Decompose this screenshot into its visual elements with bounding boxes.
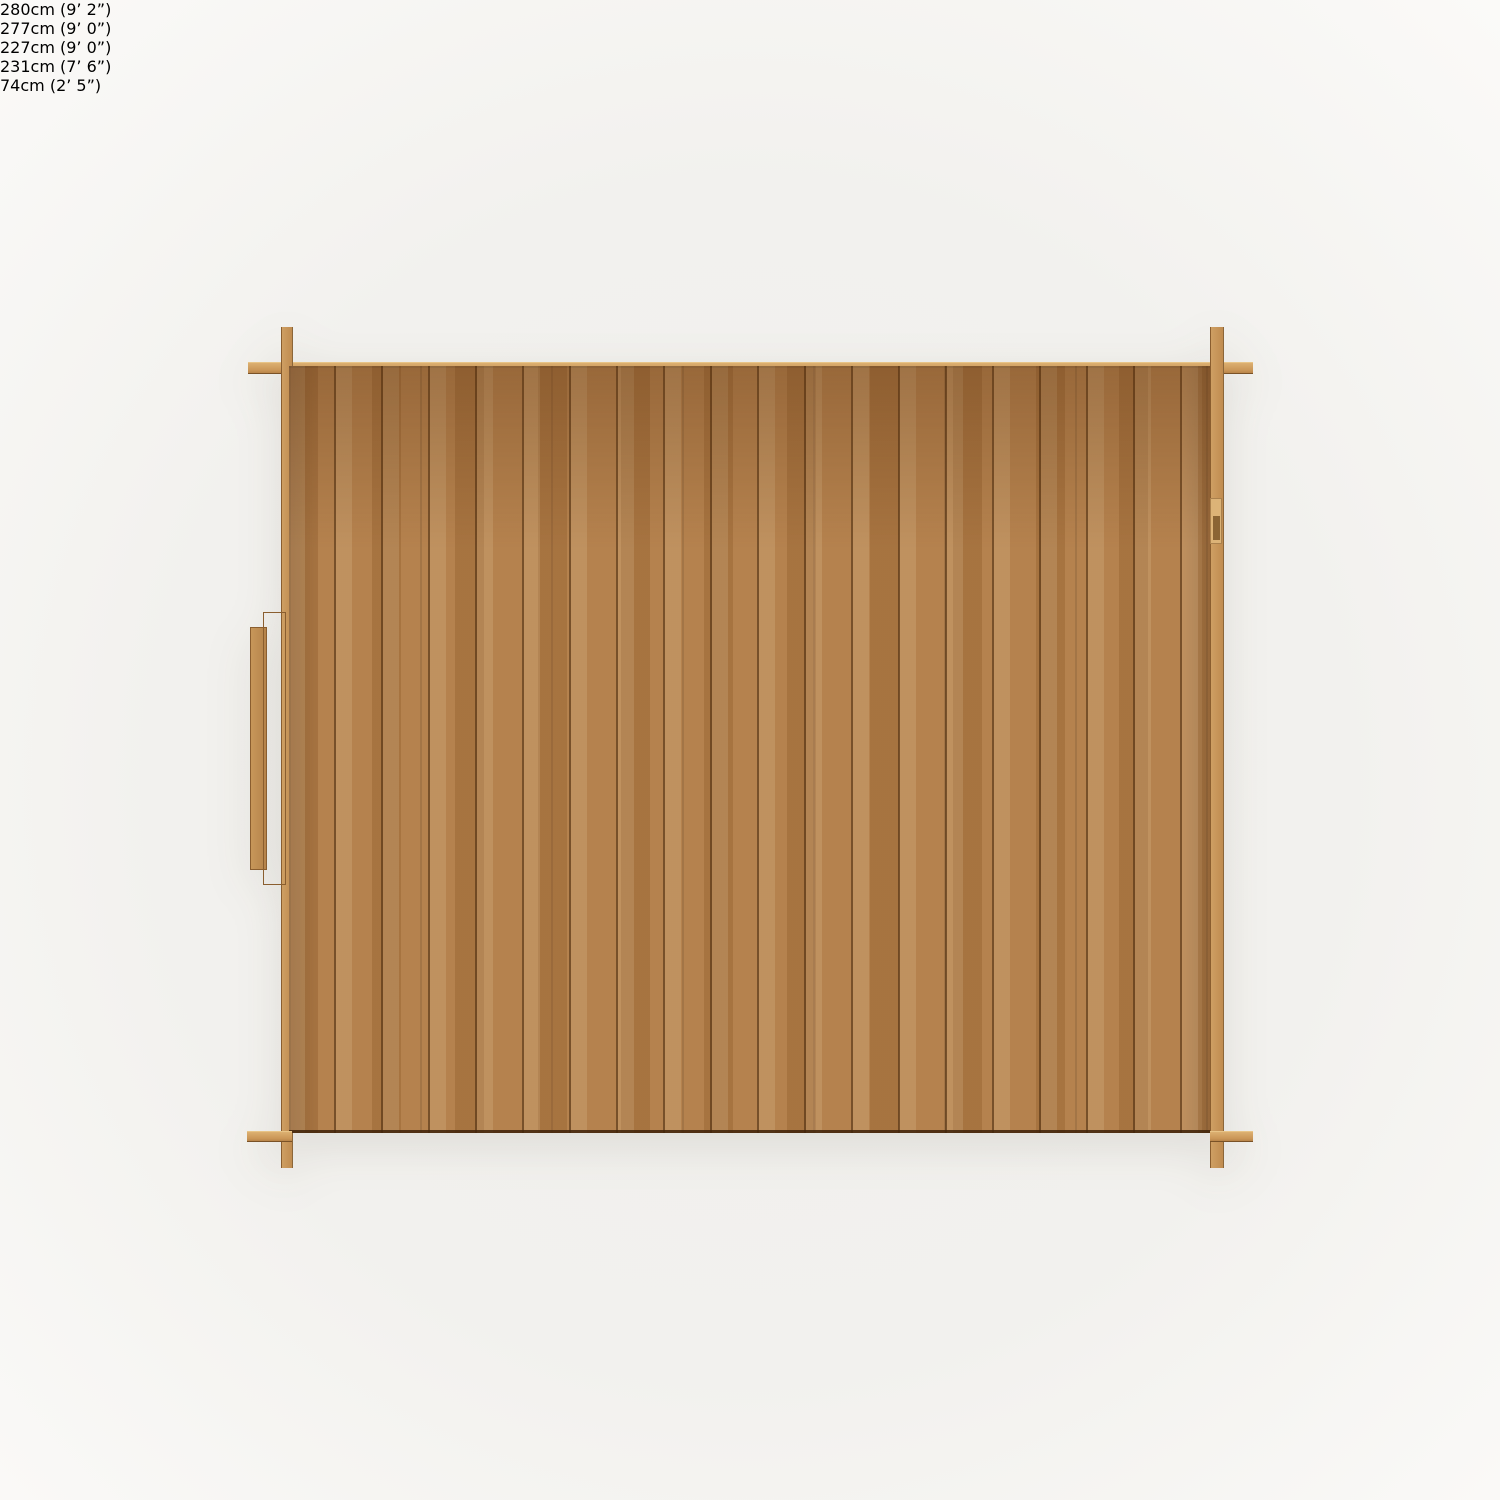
shed-top-view-diagram: 280cm (9’ 2”) 277cm (9’ 0”) 227cm (9’ 0”… [0,0,1500,1500]
right-wall-edge [1210,327,1224,1168]
shed-floor [289,366,1210,1133]
shed-plan [0,0,1500,1500]
right-wall-latch-icon [1213,516,1220,540]
front-beam-stub-left [247,1131,292,1142]
front-beam-stub-right [1210,1131,1253,1142]
left-window-shutter-inner [263,612,286,885]
